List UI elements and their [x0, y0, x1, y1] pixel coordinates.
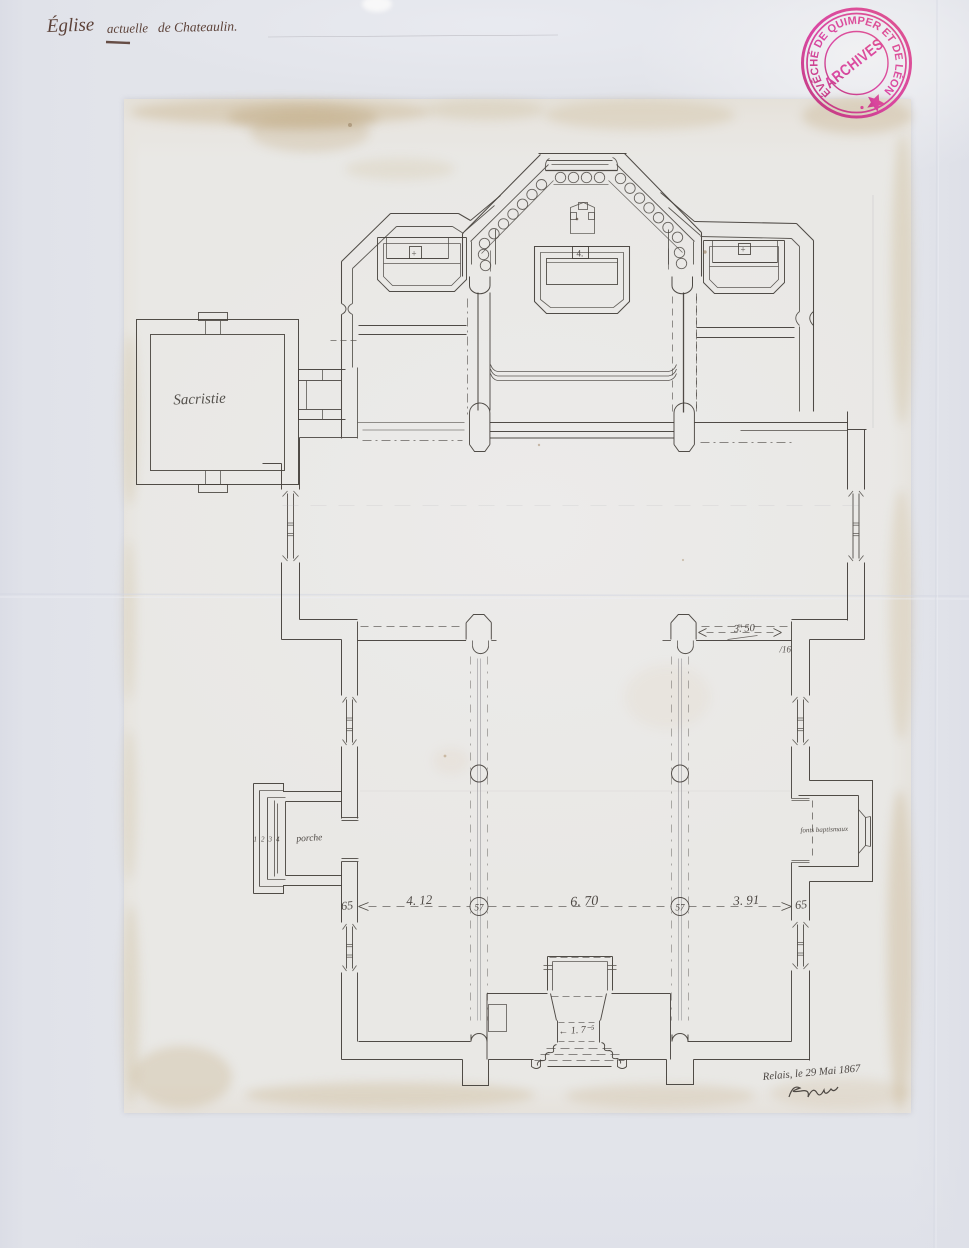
- svg-text:2: 2: [261, 836, 265, 844]
- svg-text:Église: Église: [45, 13, 94, 37]
- svg-text:57: 57: [475, 903, 485, 913]
- svg-text:4. 12: 4. 12: [406, 892, 433, 908]
- svg-text:← 1. 7⁻⁵: ← 1. 7⁻⁵: [558, 1024, 595, 1038]
- svg-text:Sacristie: Sacristie: [173, 391, 226, 409]
- svg-text:65: 65: [340, 898, 353, 913]
- svg-text:4.: 4.: [577, 249, 584, 259]
- svg-text:3. 91: 3. 91: [732, 892, 760, 908]
- svg-text:de Chateaulin.: de Chateaulin.: [158, 19, 238, 35]
- svg-text:+: +: [741, 245, 746, 255]
- svg-text:6. 70: 6. 70: [570, 894, 599, 910]
- svg-text:porche: porche: [295, 833, 323, 844]
- svg-text:Relais, le 29 Mai 1867: Relais, le 29 Mai 1867: [761, 1062, 861, 1083]
- svg-text:3. 50: 3. 50: [733, 623, 756, 635]
- svg-text:m: m: [738, 623, 743, 630]
- svg-text:/16: /16: [779, 645, 792, 655]
- svg-text:65: 65: [794, 897, 807, 912]
- svg-text:4: 4: [276, 836, 280, 844]
- svg-text:+: +: [412, 249, 417, 259]
- svg-text:1: 1: [254, 836, 258, 844]
- svg-text:fonts baptismaux: fonts baptismaux: [800, 825, 849, 835]
- svg-text:3: 3: [268, 836, 273, 844]
- svg-text:actuelle: actuelle: [107, 20, 149, 36]
- svg-text:57: 57: [676, 903, 686, 913]
